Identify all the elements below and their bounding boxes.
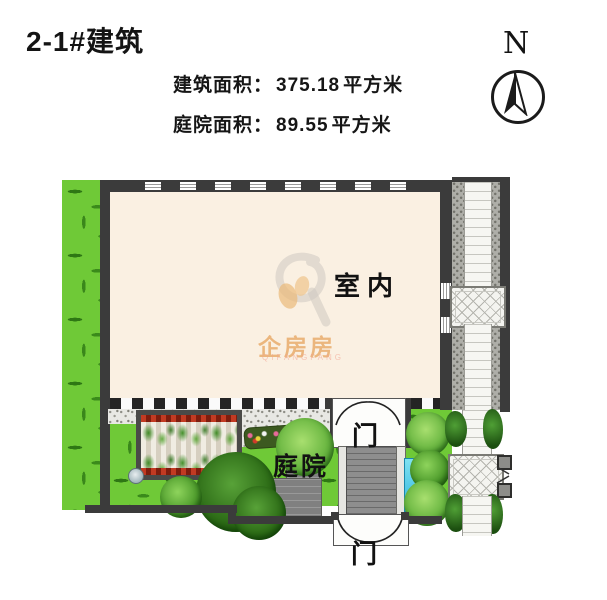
building-area-value: 375.18 <box>273 75 343 96</box>
tree <box>232 486 286 540</box>
window-icon <box>215 182 231 190</box>
site-plan-page: 2-1#建筑 建筑面积：375.18平方米 庭院面积：89.55平方米 N <box>0 0 607 600</box>
courtyard-area-value: 89.55 <box>273 115 332 136</box>
window-icon <box>285 182 301 190</box>
hedge <box>445 411 467 447</box>
left-planting-strip <box>62 180 102 510</box>
room-label: 室内 <box>334 266 400 303</box>
watermark-subtext: QIFANGFANG <box>262 353 344 362</box>
building-wall-bottom <box>110 398 325 409</box>
corridor-path-upper <box>464 182 492 286</box>
gate-post <box>401 512 409 520</box>
window-icon <box>180 182 196 190</box>
building-area-line: 建筑面积：375.18平方米 <box>173 70 403 97</box>
building-area-label: 建筑面积： <box>173 75 273 96</box>
compass-north-label: N <box>503 26 529 61</box>
courtyard-area-unit: 平方米 <box>332 115 392 136</box>
corridor-path-bottom <box>462 496 492 536</box>
north-arrow-icon <box>491 70 545 124</box>
central-walkway <box>346 446 398 520</box>
flower-row-top <box>141 415 237 422</box>
building-area-unit: 平方米 <box>343 75 403 96</box>
side-gate-post <box>497 483 512 498</box>
stone-ornament <box>128 468 144 484</box>
window-icon <box>390 182 406 190</box>
courtyard-wall-bottom-left <box>85 505 237 513</box>
building-wall-left <box>100 180 110 512</box>
gate-top-label: 门 <box>352 416 378 453</box>
window-icon <box>320 182 336 190</box>
side-gate-door-icon <box>496 466 512 484</box>
building-wall-bottom-right <box>411 398 440 409</box>
gate-bottom-label: 门 <box>351 534 377 571</box>
hedge <box>483 409 503 449</box>
window-icon <box>250 182 266 190</box>
courtyard-area-label: 庭院面积： <box>173 115 273 136</box>
corridor-plaza-upper <box>450 286 506 328</box>
courtyard-label: 庭院 <box>273 447 329 483</box>
window-icon <box>145 182 161 190</box>
page-title: 2-1#建筑 <box>26 20 144 60</box>
watermark-logo-icon <box>266 250 336 328</box>
corridor-path-middle <box>464 324 492 410</box>
gate-post <box>331 512 339 520</box>
window-icon <box>355 182 371 190</box>
courtyard-area-line: 庭院面积：89.55平方米 <box>173 110 392 137</box>
